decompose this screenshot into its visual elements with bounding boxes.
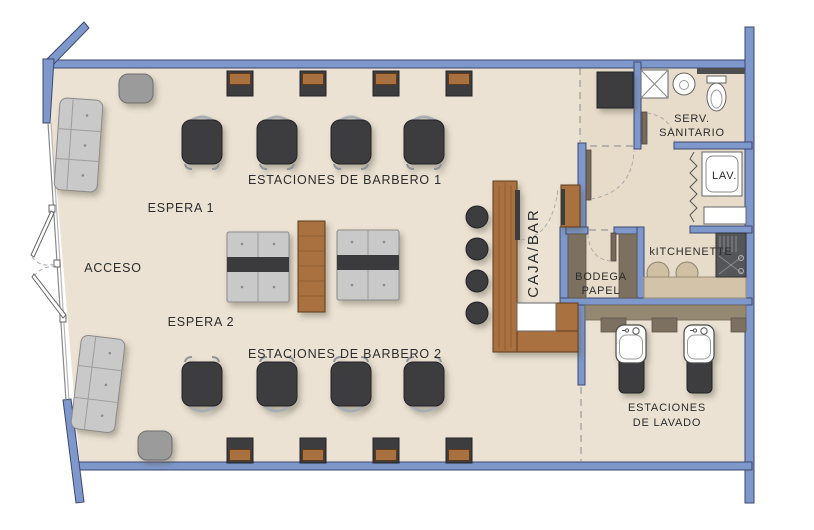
mirror-station [446, 438, 472, 463]
bathroom-door-leaf [642, 112, 647, 144]
barber-chair [182, 117, 222, 169]
waiting-bench [227, 232, 289, 302]
bar-stool [466, 270, 488, 292]
mirror-station [373, 71, 399, 96]
barber-chair [257, 117, 297, 169]
barber-chair [331, 357, 371, 411]
label-lavado-1: ESTACIONES [628, 402, 706, 414]
entrance-door-leaf-top [31, 211, 54, 257]
barber-chair [331, 117, 371, 169]
side-table [119, 74, 153, 103]
bar-right-counter [556, 303, 578, 331]
toilet-icon [707, 83, 726, 111]
wall-lavado-left [578, 305, 585, 385]
waiting-bench [337, 230, 399, 300]
wash-counter-support [652, 318, 677, 332]
corridor-door-leaf [586, 150, 591, 200]
label-sanitario-2: SANITARIO [659, 127, 725, 139]
label-barber-stations-1: ESTACIONES DE BARBERO 1 [248, 173, 442, 187]
storage-cabinet [597, 72, 633, 108]
barber-chair [257, 357, 297, 411]
bar-stool [466, 302, 488, 324]
wall-bottom [78, 462, 752, 470]
bar-bottom-counter [517, 331, 578, 352]
label-lav: LAV. [712, 170, 737, 182]
label-caja-bar: CAJA/BAR [525, 208, 542, 297]
entrance-door-swing [32, 257, 56, 265]
label-kitchenette: kITCHENETTE [649, 246, 732, 258]
mirror-station [300, 71, 326, 96]
door-post [49, 205, 55, 212]
side-table [138, 431, 172, 460]
wash-counter-support [731, 318, 746, 332]
label-bodega-2: PAPEL [582, 285, 621, 297]
label-lavado-2: DE LAVADO [633, 417, 702, 429]
console-table [298, 221, 325, 312]
mirror-station [373, 438, 399, 463]
bodega-door-leaf [611, 233, 616, 261]
bar-panel-strip [561, 189, 565, 225]
wall-bathroom-left [634, 62, 641, 149]
wall-kitchen-bottom [560, 298, 752, 305]
label-acceso: ACCESO [84, 261, 142, 275]
wall-lav-divider [690, 226, 752, 233]
bathroom-sink-icon [673, 73, 695, 95]
mirror-station [227, 71, 253, 96]
label-espera-1: ESPERA 1 [148, 201, 215, 215]
bar-stool [466, 238, 488, 260]
wall-top [44, 60, 752, 68]
label-bodega-1: BODEGA [575, 271, 627, 283]
label-barber-stations-2: ESTACIONES DE BARBERO 2 [248, 347, 442, 361]
waiting-sofa-1 [54, 98, 103, 193]
wall-bathroom-bottom [674, 142, 752, 149]
cash-register [515, 190, 520, 240]
bar-inner-counter [517, 303, 556, 331]
laundry-shelf [704, 207, 746, 224]
kitchen-counter [644, 277, 746, 298]
barber-chair [182, 357, 222, 411]
wash-station [616, 325, 646, 393]
mirror-station [446, 71, 472, 96]
center-benches [227, 221, 399, 312]
label-espera-2: ESPERA 2 [168, 315, 235, 329]
barber-chair [404, 357, 444, 411]
mirror-station [227, 438, 253, 463]
wall-bodega-right [637, 227, 644, 298]
toilet-tank [707, 76, 726, 83]
bodega-shelf [619, 234, 637, 298]
mirror-station [300, 438, 326, 463]
entrance-door-swing [34, 266, 56, 276]
bar-stool [466, 206, 488, 228]
wall-bodega-top-left [566, 227, 588, 234]
bathroom-shelf [697, 68, 745, 74]
label-sanitario-1: SERV. [674, 113, 710, 125]
wash-station [684, 325, 714, 393]
floor-plan-canvas: ESTACIONES DE BARBERO 1 ESPERA 1 ACCESO … [0, 0, 814, 530]
floor-plan-svg: ESTACIONES DE BARBERO 1 ESPERA 1 ACCESO … [0, 0, 814, 530]
barber-chair [404, 117, 444, 169]
wall-bodega-left [560, 227, 568, 305]
